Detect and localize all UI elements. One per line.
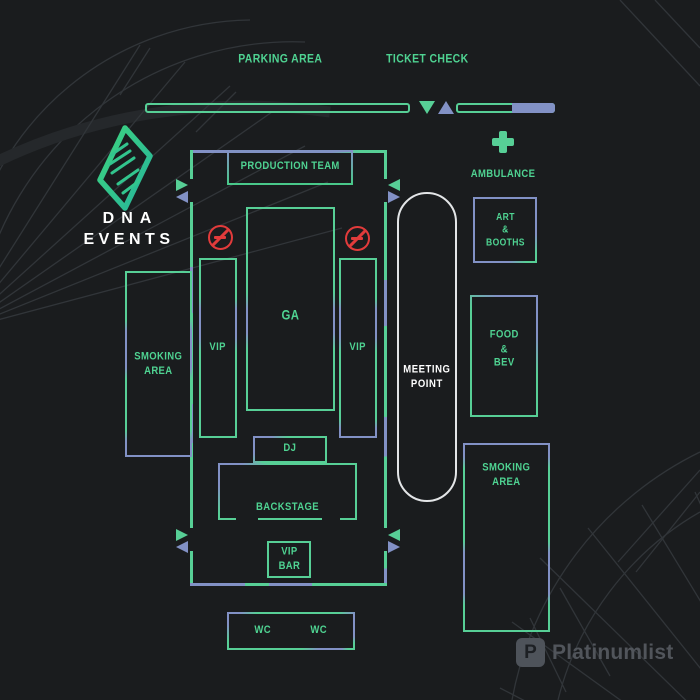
entry-arrow-icon bbox=[388, 179, 400, 191]
wc-area: WC WC bbox=[227, 612, 355, 650]
platinumlist-logo[interactable]: P Platinumlist bbox=[516, 638, 673, 667]
entry-arrow-icon bbox=[176, 529, 188, 541]
venue-wall-bottom bbox=[190, 583, 387, 586]
venue-wall-right bbox=[384, 202, 387, 528]
exit-arrow-icon bbox=[388, 541, 400, 553]
no-smoking-icon bbox=[208, 225, 233, 250]
exit-arrow-icon bbox=[438, 101, 454, 114]
art-booths-area: ART&BOOTHS bbox=[473, 197, 537, 263]
ambulance-cross-icon bbox=[492, 131, 514, 153]
entry-arrow-icon bbox=[176, 179, 188, 191]
vip-area-left: VIP bbox=[199, 258, 237, 438]
venue-wall-left bbox=[190, 551, 193, 583]
vip-area-right: VIP bbox=[339, 258, 377, 438]
meeting-point-area: MEETINGPOINT bbox=[397, 192, 457, 502]
ticket-check-label: TICKET CHECK bbox=[352, 49, 502, 67]
entry-arrow-icon bbox=[388, 529, 400, 541]
production-team-area: PRODUCTION TEAM bbox=[227, 150, 353, 185]
venue-wall-left bbox=[190, 150, 193, 179]
exit-arrow-icon bbox=[176, 191, 188, 203]
food-bev-area: FOOD&BEV bbox=[470, 295, 538, 417]
backstage-door-gap bbox=[236, 517, 258, 521]
ticket-check-booth bbox=[512, 103, 555, 113]
vip-bar: VIPBAR bbox=[267, 541, 311, 578]
dj-booth: DJ bbox=[253, 436, 327, 463]
no-smoking-icon bbox=[345, 226, 370, 251]
exit-arrow-icon bbox=[176, 541, 188, 553]
parking-barrier bbox=[145, 103, 410, 113]
entry-arrow-icon bbox=[419, 101, 435, 114]
smoking-area-right: SMOKINGAREA bbox=[463, 443, 550, 632]
venue-wall-right bbox=[384, 551, 387, 583]
venue-wall-right bbox=[384, 150, 387, 179]
dna-events-wordmark: DNA EVENTS bbox=[62, 210, 192, 249]
backstage-area: BACKSTAGE bbox=[218, 463, 357, 520]
ticket-check-barrier bbox=[456, 103, 555, 113]
platinumlist-icon: P bbox=[516, 638, 545, 667]
exit-arrow-icon bbox=[388, 191, 400, 203]
ga-area: GA bbox=[246, 207, 335, 411]
smoking-area-left: SMOKINGAREA bbox=[125, 271, 192, 457]
platinumlist-wordmark: Platinumlist bbox=[552, 641, 673, 665]
backstage-door-gap bbox=[322, 517, 340, 521]
ambulance-label: AMBULANCE bbox=[451, 164, 555, 182]
parking-area-label: PARKING AREA bbox=[200, 49, 360, 67]
dna-logo-icon bbox=[96, 124, 154, 212]
